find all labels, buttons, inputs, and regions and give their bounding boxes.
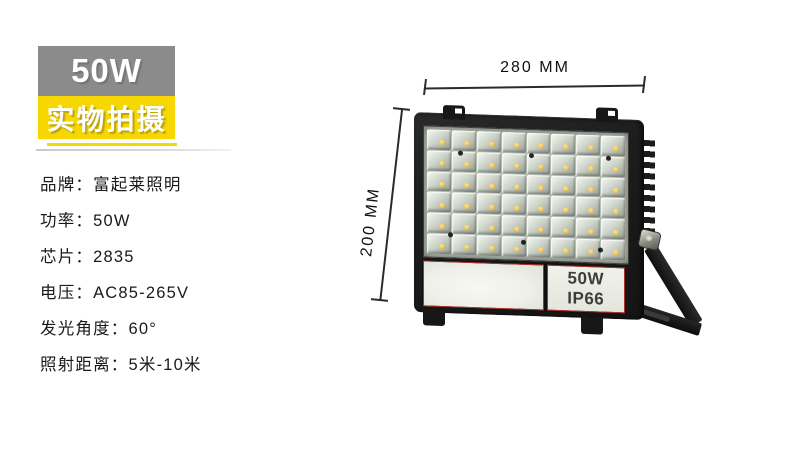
spec-voltage: 电压：AC85-265V bbox=[40, 282, 360, 304]
led-cell bbox=[576, 176, 600, 197]
led-cell bbox=[452, 172, 476, 193]
led-cell bbox=[477, 152, 501, 173]
dimension-height-label: 200 MM bbox=[357, 176, 385, 267]
led-cell bbox=[601, 198, 625, 219]
led-cell bbox=[601, 136, 625, 157]
led-cell bbox=[452, 193, 476, 214]
screw-dot bbox=[521, 240, 526, 245]
power-badge: 50W bbox=[38, 46, 175, 96]
led-cell bbox=[427, 171, 451, 192]
led-cell bbox=[551, 196, 575, 217]
led-cell bbox=[601, 177, 625, 198]
led-cell bbox=[601, 156, 625, 177]
dimension-width-label: 280 MM bbox=[460, 59, 610, 77]
dimension-width-line bbox=[425, 84, 645, 89]
spec-brand: 品牌：富起莱照明 bbox=[40, 174, 360, 196]
led-cell bbox=[502, 174, 526, 195]
real-photo-badge: 实物拍摄 bbox=[38, 96, 175, 139]
led-cell bbox=[502, 215, 526, 236]
led-cell bbox=[576, 155, 600, 176]
led-cell bbox=[502, 153, 526, 174]
led-cell bbox=[502, 132, 526, 153]
led-cell bbox=[452, 234, 476, 255]
product-label: 50W IP66 bbox=[547, 265, 625, 314]
mounting-tab-top-left bbox=[443, 105, 465, 120]
led-cell bbox=[427, 129, 451, 150]
led-cell bbox=[551, 217, 575, 238]
led-cell bbox=[527, 216, 551, 237]
led-window bbox=[423, 125, 629, 264]
led-cell bbox=[576, 218, 600, 239]
led-cell bbox=[477, 131, 501, 152]
led-cell bbox=[551, 175, 575, 196]
led-grid bbox=[424, 126, 628, 263]
led-cell bbox=[527, 175, 551, 196]
led-cell bbox=[527, 133, 551, 154]
dimension-height-tick-bottom bbox=[371, 298, 388, 302]
screw-dot bbox=[606, 156, 611, 161]
mounting-tab-bottom-left bbox=[423, 308, 445, 326]
led-cell bbox=[601, 240, 625, 261]
led-cell bbox=[477, 235, 501, 256]
led-cell bbox=[452, 151, 476, 172]
screw-dot bbox=[598, 247, 603, 252]
badge-underline bbox=[47, 143, 177, 146]
led-cell bbox=[576, 197, 600, 218]
led-cell bbox=[576, 239, 600, 260]
product-showcase: 50W 实物拍摄 品牌：富起莱照明 功率：50W 芯片：2835 电压：AC85… bbox=[0, 0, 790, 467]
spec-list: 品牌：富起莱照明 功率：50W 芯片：2835 电压：AC85-265V 发光角… bbox=[40, 174, 360, 390]
bracket-slot bbox=[642, 309, 670, 322]
spec-power: 功率：50W bbox=[40, 210, 360, 232]
screw-dot bbox=[458, 151, 463, 156]
spec-angle: 发光角度：60° bbox=[40, 318, 360, 340]
led-cell bbox=[527, 237, 551, 258]
floodlight: 50W IP66 bbox=[414, 112, 644, 320]
dimension-width-tick-right bbox=[642, 76, 646, 93]
spec-chip: 芯片：2835 bbox=[40, 246, 360, 268]
led-cell bbox=[601, 219, 625, 240]
dimension-height-line bbox=[379, 110, 403, 301]
led-cell bbox=[427, 150, 451, 171]
led-cell bbox=[502, 195, 526, 216]
led-cell bbox=[427, 234, 451, 255]
led-cell bbox=[551, 155, 575, 176]
led-cell bbox=[527, 195, 551, 216]
label-power: 50W bbox=[568, 268, 604, 289]
mounting-tab-bottom-right bbox=[581, 317, 603, 335]
mounting-tab-top-right bbox=[596, 107, 618, 122]
screw-dot bbox=[448, 232, 453, 237]
screw-dot bbox=[529, 153, 534, 158]
led-cell bbox=[477, 215, 501, 236]
led-cell bbox=[477, 194, 501, 215]
diffuser-panel bbox=[423, 260, 544, 310]
led-cell bbox=[452, 130, 476, 151]
led-cell bbox=[576, 135, 600, 156]
led-cell bbox=[452, 214, 476, 235]
led-cell bbox=[427, 192, 451, 213]
bottom-panel: 50W IP66 bbox=[422, 259, 626, 314]
led-cell bbox=[427, 213, 451, 234]
led-cell bbox=[551, 134, 575, 155]
led-cell bbox=[551, 238, 575, 259]
badge-divider bbox=[36, 149, 231, 151]
label-ip-rating: IP66 bbox=[567, 288, 604, 309]
spec-distance: 照射距离：5米-10米 bbox=[40, 354, 360, 376]
led-cell bbox=[477, 173, 501, 194]
